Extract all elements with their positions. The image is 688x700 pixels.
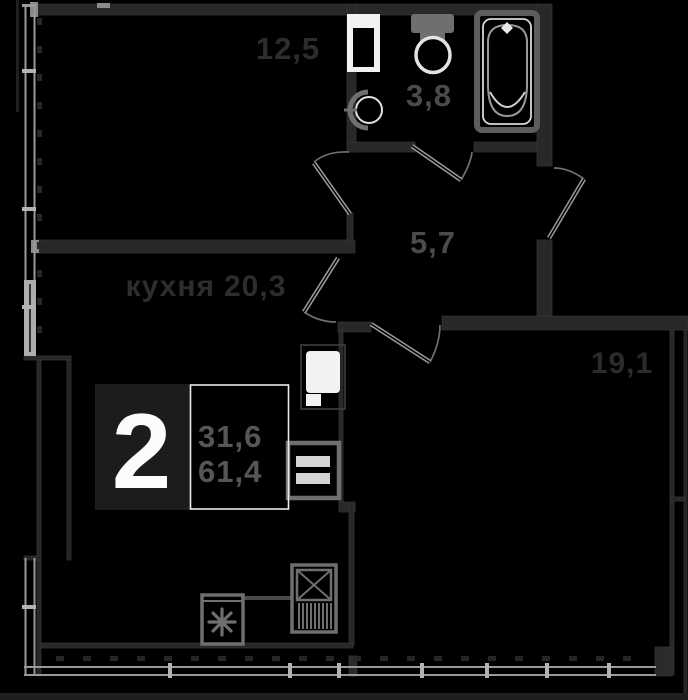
wall-cap xyxy=(97,3,110,8)
wall xyxy=(36,240,355,253)
plan-background xyxy=(0,0,688,700)
window-mullion xyxy=(22,69,36,73)
counter-edge xyxy=(243,596,293,600)
living-area-value: 31,6 xyxy=(198,419,262,454)
wall xyxy=(24,356,71,360)
wall xyxy=(0,693,688,700)
window-mullion xyxy=(485,663,489,678)
total-area-value: 61,4 xyxy=(198,454,262,489)
kitchen-area-label: 20,3 xyxy=(224,270,286,303)
floor-plan: 12,5 3,8 5,7 кухня20,3 19,1 2 31,6 61,4 xyxy=(0,0,688,700)
wall xyxy=(37,356,41,676)
room-12-5-area-label: 12,5 xyxy=(256,31,320,66)
wall xyxy=(671,497,685,501)
window-line xyxy=(25,558,27,676)
window-mullion xyxy=(337,663,341,678)
wall xyxy=(36,4,537,15)
floor-plan-canvas: 12,5 3,8 5,7 кухня20,3 19,1 2 31,6 61,4 xyxy=(0,0,688,700)
bathroom-area-label: 3,8 xyxy=(406,78,452,113)
snowflake-icon xyxy=(209,609,235,635)
wall xyxy=(349,504,354,645)
room-19-1-area-label: 19,1 xyxy=(591,347,653,380)
wall xyxy=(655,647,672,676)
hallway-area-label: 5,7 xyxy=(410,225,456,260)
wall xyxy=(347,142,415,152)
balcony-door-core xyxy=(29,284,31,352)
window-mullion xyxy=(607,663,611,678)
kitchen-name-label: кухня xyxy=(126,270,215,303)
wall xyxy=(442,316,688,330)
wall xyxy=(474,142,537,152)
window-mullion xyxy=(22,605,36,609)
rooms-count-badge: 2 xyxy=(112,391,172,511)
wall xyxy=(41,643,353,648)
wall xyxy=(670,330,674,675)
window-mullion xyxy=(168,663,172,678)
window-mullion xyxy=(22,305,36,309)
wall xyxy=(24,556,41,560)
kitchen-label: кухня20,3 xyxy=(126,270,287,303)
window-mullion xyxy=(288,663,292,678)
wall xyxy=(67,356,71,560)
window-mullion xyxy=(420,663,424,678)
window-mullion xyxy=(545,663,549,678)
wall xyxy=(537,240,552,316)
window-line xyxy=(34,558,36,676)
wall xyxy=(16,0,19,112)
wall xyxy=(347,213,353,242)
wall xyxy=(684,330,687,700)
washing-machine-icon xyxy=(347,14,380,72)
window-mullion xyxy=(22,207,36,211)
